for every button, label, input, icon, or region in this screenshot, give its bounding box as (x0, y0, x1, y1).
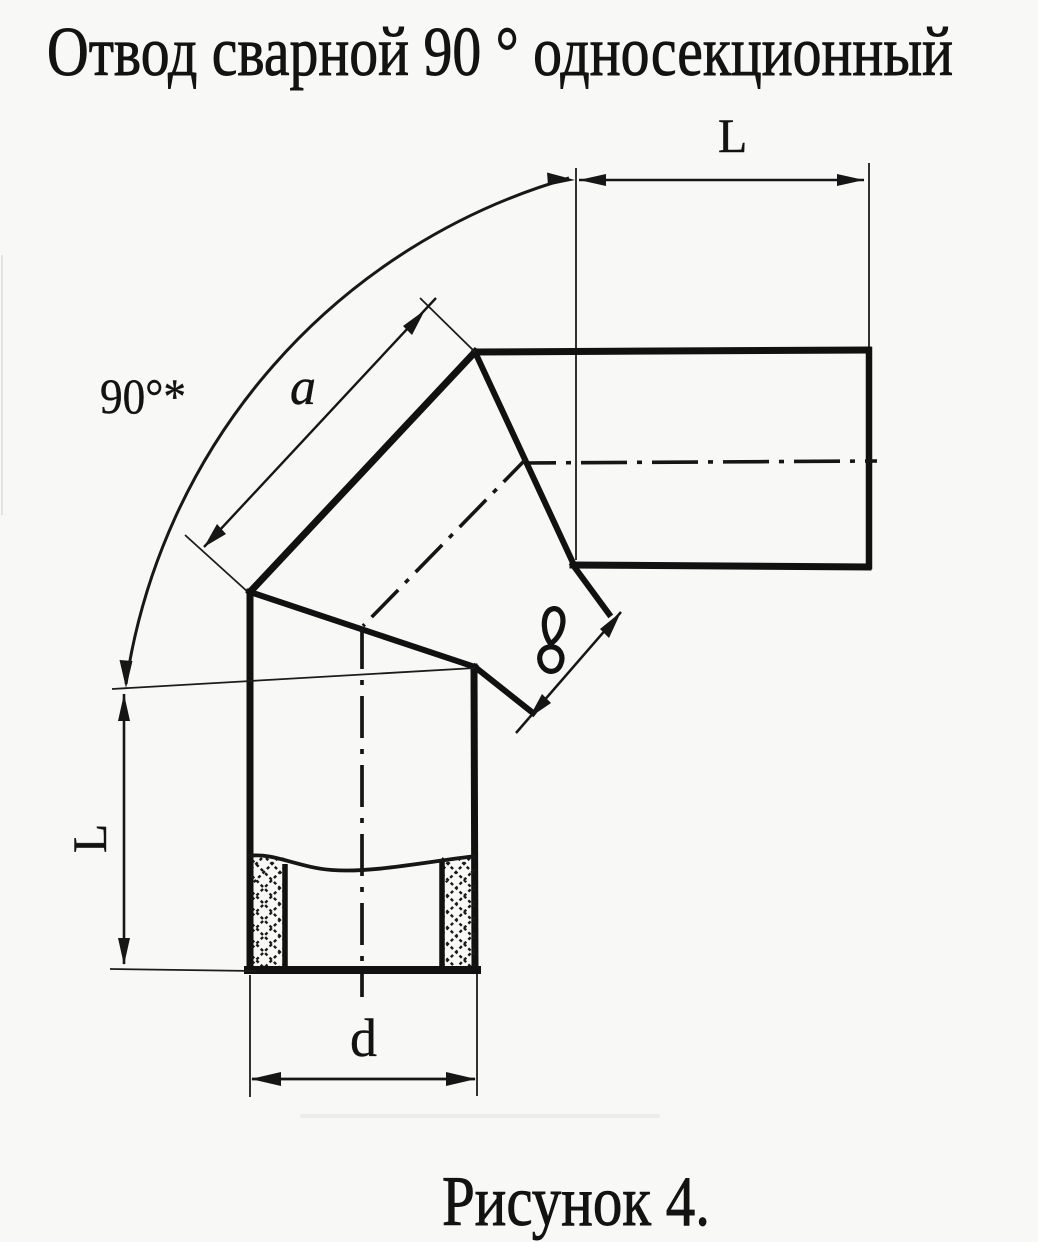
svg-text:d: d (350, 1008, 377, 1068)
svg-text:a: a (290, 359, 316, 416)
svg-text:Рисунок 4.: Рисунок 4. (442, 1163, 710, 1241)
svg-text:L: L (64, 824, 117, 853)
svg-text:L: L (718, 110, 747, 163)
svg-text:Отвод сварной 90 ° односекцион: Отвод сварной 90 ° односекционный (47, 14, 953, 91)
svg-text:90°*: 90°* (100, 368, 186, 424)
